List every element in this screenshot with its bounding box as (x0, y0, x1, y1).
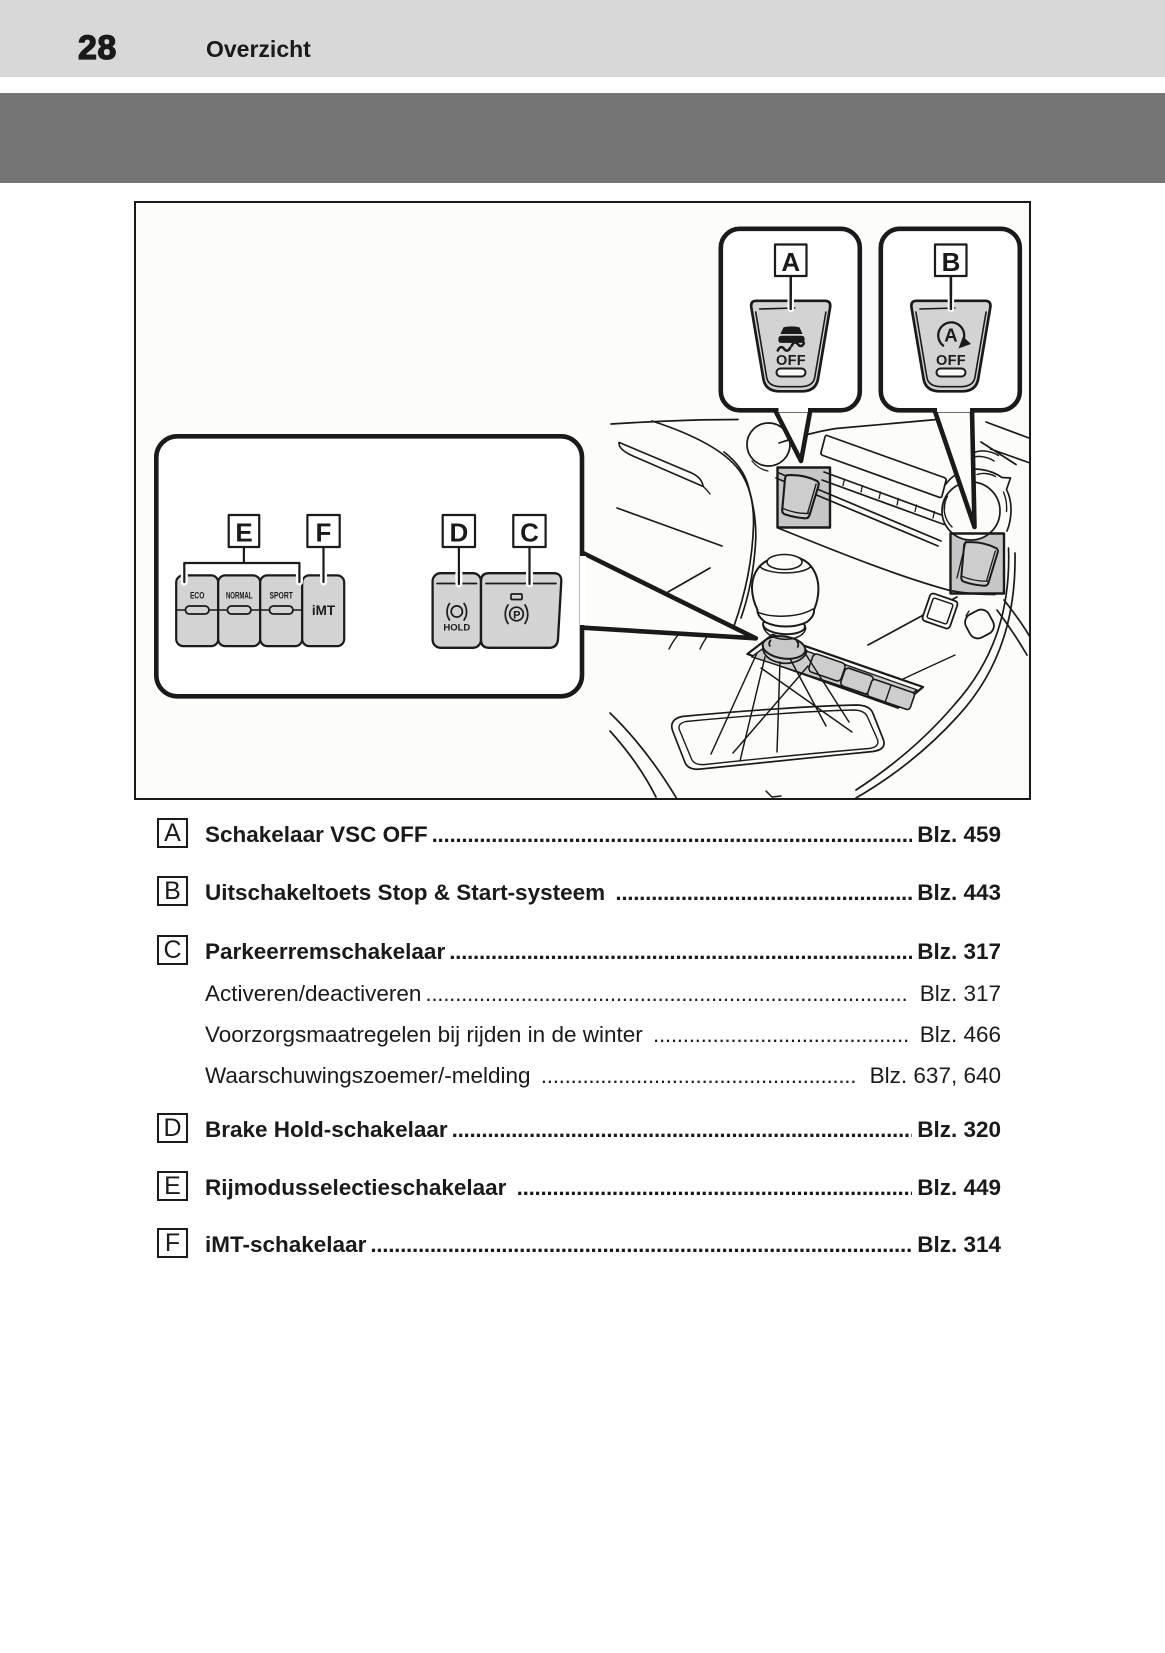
svg-text:HOLD: HOLD (443, 623, 470, 634)
svg-text:C: C (520, 518, 539, 548)
svg-text:iMT: iMT (312, 603, 336, 618)
svg-text:SPORT: SPORT (269, 591, 293, 602)
svg-text:A: A (781, 247, 800, 277)
svg-text:F: F (316, 518, 332, 548)
svg-text:B: B (942, 247, 961, 277)
svg-text:OFF: OFF (776, 353, 806, 369)
svg-text:NORMAL: NORMAL (226, 591, 253, 601)
svg-text:OFF: OFF (936, 353, 966, 369)
svg-text:ECO: ECO (190, 591, 205, 602)
svg-text:A: A (944, 325, 957, 346)
svg-text:D: D (450, 518, 469, 548)
svg-text:E: E (235, 518, 252, 548)
svg-text:P: P (513, 610, 520, 622)
